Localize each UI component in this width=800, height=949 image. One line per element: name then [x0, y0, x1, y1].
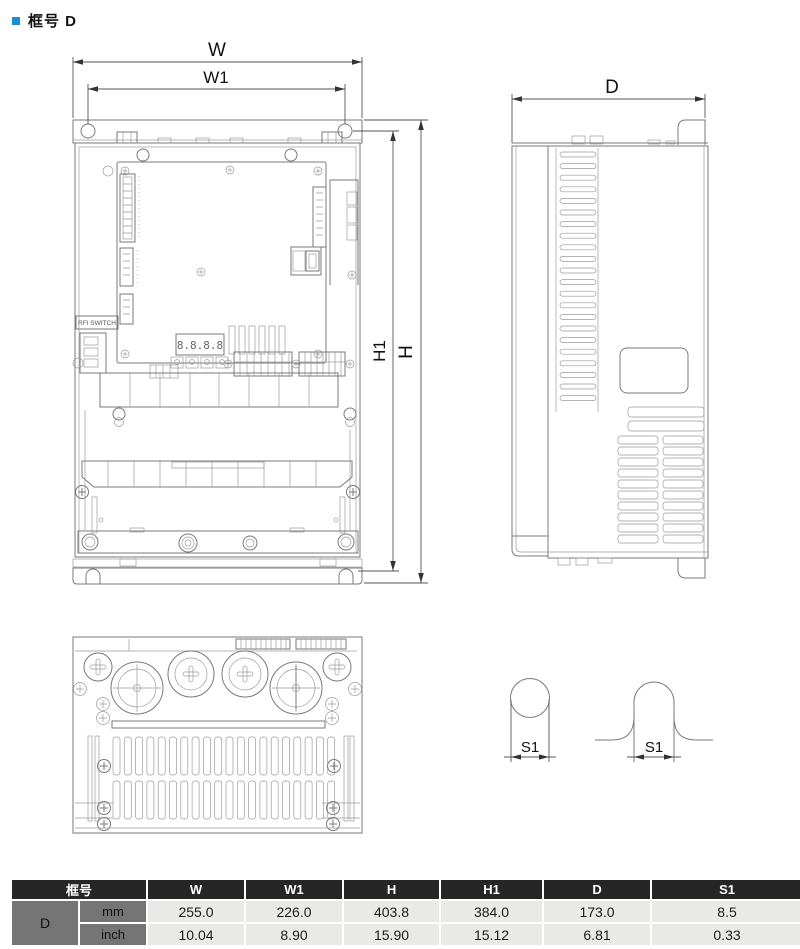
value-w-mm: 255.0: [148, 901, 244, 922]
dimension-table: 框号 W W1 H H1 D S1 D mm 255.0 226.0 403.8…: [10, 878, 800, 947]
display-digits: 8.8.8.8: [177, 339, 223, 352]
mounting-hole-detail-round: S1: [504, 679, 556, 763]
bottom-mounting-plate: [73, 568, 362, 584]
dim-label-w: W: [208, 40, 226, 61]
io-connector-2: [120, 248, 137, 286]
value-h-mm: 403.8: [344, 901, 439, 922]
power-terminal-row: [100, 373, 338, 407]
mounting-hole-detail-slot: S1: [595, 682, 713, 762]
rfi-switch-label: RFI SWITCH: [78, 320, 116, 327]
option-card-bay: [313, 180, 358, 285]
rfi-switch: RFI SWITCH: [73, 316, 118, 373]
bottom-cover-strip: [78, 528, 358, 553]
value-s1-mm: 8.5: [652, 901, 800, 922]
header-h1: H1: [441, 880, 542, 899]
value-d-mm: 173.0: [544, 901, 650, 922]
header-frame: 框号: [12, 880, 146, 899]
pcb-vent-slots: [229, 326, 285, 354]
header-h: H: [344, 880, 439, 899]
bottom-keyhole-right: [339, 569, 353, 584]
value-d-inch: 6.81: [544, 924, 650, 945]
dim-label-w1: W1: [203, 68, 229, 87]
value-h1-mm: 384.0: [441, 901, 542, 922]
mount-hole-left: [81, 124, 95, 138]
front-view: RFI SWITCH 8.8.8.8: [73, 40, 428, 584]
unit-cell-inch: inch: [80, 924, 146, 945]
value-w-inch: 10.04: [148, 924, 244, 945]
dim-label-d: D: [605, 77, 619, 98]
usb-connector: [291, 247, 321, 275]
dimension-d: D: [512, 77, 705, 143]
side-vent-grid: [618, 436, 703, 543]
value-w1-mm: 226.0: [246, 901, 342, 922]
seven-segment-display: 8.8.8.8: [176, 334, 224, 355]
io-connector-3: [120, 294, 133, 324]
control-terminal-block-1: [234, 352, 292, 376]
bottom-keyhole-left: [86, 569, 100, 584]
page: 框号 D: [0, 0, 800, 949]
technical-drawing: RFI SWITCH 8.8.8.8: [0, 0, 800, 872]
dim-label-h1: H1: [370, 340, 389, 362]
header-s1: S1: [652, 880, 800, 899]
header-w1: W1: [246, 880, 342, 899]
dim-label-s1-slot: S1: [645, 739, 663, 756]
header-w: W: [148, 880, 244, 899]
cable-knockouts: [84, 651, 351, 714]
nameplate: [620, 348, 688, 393]
mount-hole-right: [338, 124, 352, 138]
bottom-vent-slats: [88, 736, 354, 821]
frame-cell: D: [12, 901, 78, 945]
dim-label-h: H: [396, 345, 417, 359]
value-s1-inch: 0.33: [652, 924, 800, 945]
dim-label-s1-round: S1: [521, 739, 539, 756]
side-view: D: [512, 77, 708, 578]
header-d: D: [544, 880, 650, 899]
lower-louver-row: [82, 461, 352, 487]
io-connector-1: [120, 174, 139, 242]
value-w1-inch: 8.90: [246, 924, 342, 945]
table-row-mm: D mm 255.0 226.0 403.8 384.0 173.0 8.5: [12, 901, 800, 922]
table-header-row: 框号 W W1 H H1 D S1: [12, 880, 800, 899]
bottom-terminal-strips: [236, 639, 346, 649]
bottom-view: [73, 637, 362, 833]
value-h1-inch: 15.12: [441, 924, 542, 945]
dimension-w1: W1: [88, 68, 345, 124]
table-row-inch: inch 10.04 8.90 15.90 15.12 6.81 0.33: [12, 924, 800, 945]
unit-cell-mm: mm: [80, 901, 146, 922]
side-vent-slots: [556, 148, 598, 412]
value-h-inch: 15.90: [344, 924, 439, 945]
